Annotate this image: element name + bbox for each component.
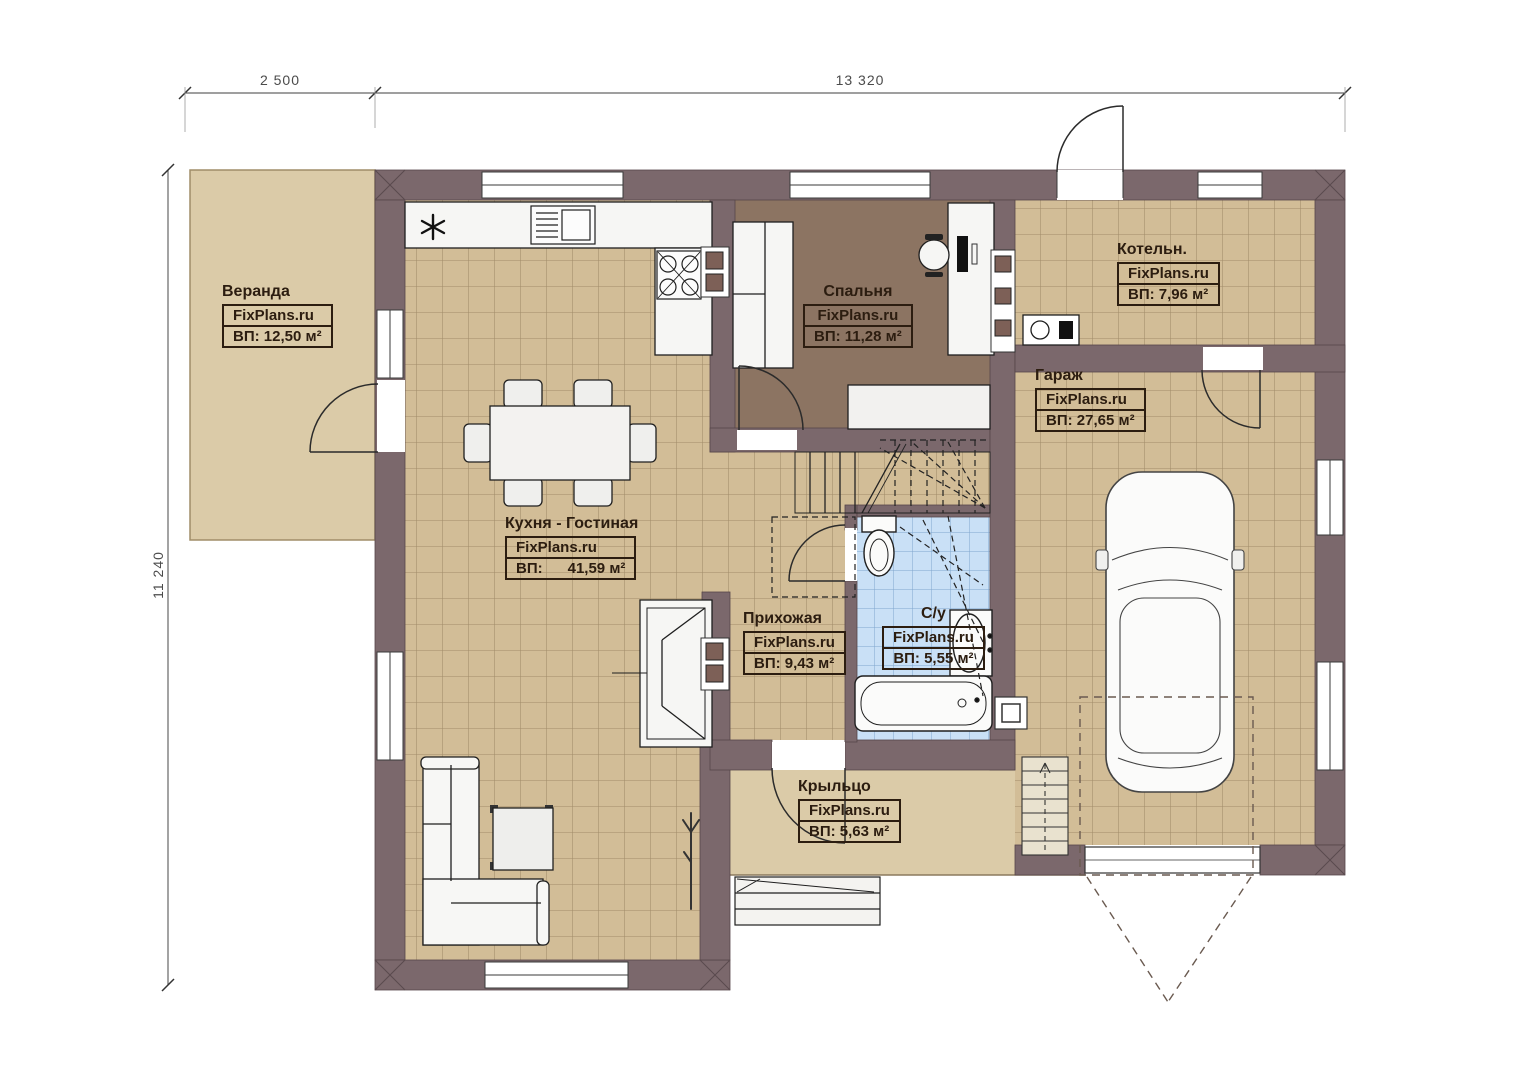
room-name: Кухня - Гостиная bbox=[505, 515, 638, 533]
wall-fixture bbox=[995, 697, 1027, 729]
chair bbox=[464, 424, 492, 462]
watermark: FixPlans.ru bbox=[800, 801, 899, 822]
chair bbox=[504, 478, 542, 506]
toilet-icon bbox=[862, 516, 896, 576]
watermark: FixPlans.ru bbox=[745, 633, 844, 654]
veranda-floor bbox=[190, 170, 375, 540]
room-area: ВП: 7,96 м² bbox=[1119, 285, 1218, 304]
room-name: Веранда bbox=[222, 283, 333, 301]
desk bbox=[948, 203, 994, 355]
car-icon bbox=[1096, 472, 1244, 792]
car-mirror bbox=[1232, 550, 1244, 570]
room-area: ВП: 12,50 м² bbox=[224, 327, 331, 346]
fireplace-chimney-blocks bbox=[701, 638, 729, 690]
room-name: Спальня bbox=[803, 283, 913, 301]
watermark: FixPlans.ru bbox=[507, 538, 634, 559]
room-area: ВП: 5,55 м² bbox=[884, 649, 983, 668]
floor-plan-drawing bbox=[0, 0, 1528, 1080]
room-label-porch: Крыльцо FixPlans.ru ВП: 5,63 м² bbox=[798, 778, 901, 843]
room-area: ВП: 9,43 м² bbox=[745, 654, 844, 673]
room-label-boiler: Котельн. FixPlans.ru ВП: 7,96 м² bbox=[1117, 241, 1220, 306]
room-name: Крыльцо bbox=[798, 778, 901, 796]
dimension-top-right: 13 320 bbox=[810, 72, 910, 88]
watermark: FixPlans.ru bbox=[884, 628, 983, 649]
room-name: С/у bbox=[882, 605, 985, 623]
chair bbox=[574, 380, 612, 408]
porch-steps bbox=[735, 877, 880, 925]
room-name: Котельн. bbox=[1117, 241, 1220, 259]
stove-icon bbox=[657, 251, 701, 299]
watermark: FixPlans.ru bbox=[1037, 390, 1144, 411]
coffee-table bbox=[490, 805, 553, 870]
room-label-bathroom: С/у FixPlans.ru ВП: 5,55 м² bbox=[882, 605, 985, 670]
boiler-chimney-blocks bbox=[991, 250, 1015, 352]
dimension-left: 11 240 bbox=[150, 535, 166, 615]
dimension-top-left: 2 500 bbox=[240, 72, 320, 88]
watermark: FixPlans.ru bbox=[224, 306, 331, 327]
boiler-unit bbox=[1023, 315, 1079, 345]
room-name: Гараж bbox=[1035, 367, 1146, 385]
floor-plan-page: 2 500 13 320 11 240 Веранда FixPlans.ru … bbox=[0, 0, 1528, 1080]
room-label-kitchen-living: Кухня - Гостиная FixPlans.ru ВП: 41,59 м… bbox=[505, 515, 638, 580]
watermark: FixPlans.ru bbox=[805, 306, 911, 327]
car-mirror bbox=[1096, 550, 1108, 570]
sink-icon bbox=[531, 206, 595, 244]
room-area: ВП: 41,59 м² bbox=[507, 559, 634, 578]
room-area: ВП: 11,28 м² bbox=[805, 327, 911, 346]
room-area: ВП: 27,65 м² bbox=[1037, 411, 1144, 430]
chair bbox=[574, 478, 612, 506]
monitor-icon bbox=[957, 236, 968, 272]
garage-door bbox=[1085, 847, 1260, 873]
watermark: FixPlans.ru bbox=[1119, 264, 1218, 285]
chair bbox=[628, 424, 656, 462]
room-label-bedroom: Спальня FixPlans.ru ВП: 11,28 м² bbox=[803, 283, 913, 348]
kitchen-chimney-blocks bbox=[701, 247, 729, 297]
entrance-door-arc bbox=[1057, 106, 1123, 172]
room-label-hallway: Прихожая FixPlans.ru ВП: 9,43 м² bbox=[743, 610, 846, 675]
wardrobe bbox=[733, 222, 793, 368]
room-label-veranda: Веранда FixPlans.ru ВП: 12,50 м² bbox=[222, 283, 333, 348]
bed bbox=[848, 385, 990, 429]
chair bbox=[504, 380, 542, 408]
bathtub-icon bbox=[855, 676, 992, 731]
room-area: ВП: 5,63 м² bbox=[800, 822, 899, 841]
room-label-garage: Гараж FixPlans.ru ВП: 27,65 м² bbox=[1035, 367, 1146, 432]
room-name: Прихожая bbox=[743, 610, 846, 628]
porch-side-stair bbox=[1022, 757, 1068, 855]
